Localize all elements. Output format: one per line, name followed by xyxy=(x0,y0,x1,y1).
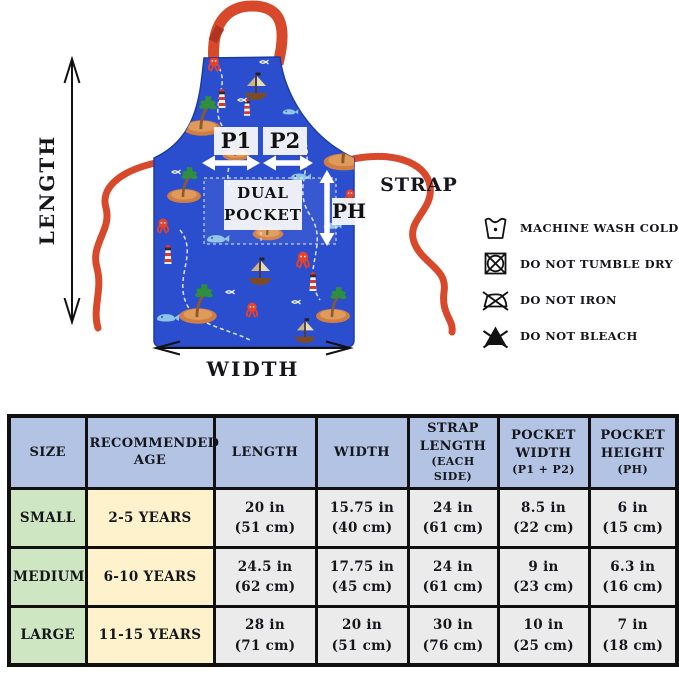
cell-strap-length: 30 in(76 cm) xyxy=(408,606,498,665)
do-not-iron-icon xyxy=(482,286,509,313)
col-header-pocket-height: POCKET HEIGHT(PH) xyxy=(589,416,677,488)
cell-width: 15.75 in(40 cm) xyxy=(316,488,408,547)
cell-length: 24.5 in(62 cm) xyxy=(214,547,316,606)
length-label: LENGTH xyxy=(35,131,59,249)
care-label: MACHINE WASH COLD xyxy=(520,221,679,235)
cell-size: MEDIUM xyxy=(9,547,86,606)
ph-label: PH xyxy=(332,198,366,225)
table-row-medium: MEDIUM 6-10 YEARS 24.5 in(62 cm) 17.75 i… xyxy=(9,547,677,606)
strap-label: STRAP xyxy=(376,174,462,196)
cell-pocket-width: 8.5 in(22 cm) xyxy=(498,488,589,547)
care-instructions: MACHINE WASH COLD DO NOT TUMBLE DRY DO N… xyxy=(482,214,678,358)
col-header-recommended-age: RECOMMENDED AGE xyxy=(86,416,214,488)
cell-pocket-height: 6 in(15 cm) xyxy=(589,488,677,547)
cell-width: 20 in(51 cm) xyxy=(316,606,408,665)
length-arrow xyxy=(65,59,80,322)
col-header-length: LENGTH xyxy=(214,416,316,488)
cell-width: 17.75 in(45 cm) xyxy=(316,547,408,606)
table-header-row: SIZE RECOMMENDED AGE LENGTH WIDTH STRAP … xyxy=(9,416,677,488)
do-not-bleach-icon xyxy=(482,322,509,349)
cell-pocket-height: 6.3 in(16 cm) xyxy=(589,547,677,606)
cell-pocket-width: 10 in(25 cm) xyxy=(498,606,589,665)
dual-pocket-label: DUAL POCKET xyxy=(224,180,302,230)
do-not-tumble-dry-icon xyxy=(482,250,509,277)
p2-label: P2 xyxy=(263,127,307,155)
cell-age: 2-5 YEARS xyxy=(86,488,214,547)
care-label: DO NOT BLEACH xyxy=(520,329,638,343)
col-header-pocket-width: POCKET WIDTH(P1 + P2) xyxy=(498,416,589,488)
cell-pocket-width: 9 in(23 cm) xyxy=(498,547,589,606)
care-label: DO NOT IRON xyxy=(520,293,617,307)
care-label: DO NOT TUMBLE DRY xyxy=(520,257,673,271)
care-row-machine-wash: MACHINE WASH COLD xyxy=(482,214,678,241)
care-row-no-bleach: DO NOT BLEACH xyxy=(482,322,678,349)
table-row-small: SMALL 2-5 YEARS 20 in(51 cm) 15.75 in(40… xyxy=(9,488,677,547)
col-header-size: SIZE xyxy=(9,416,86,488)
cell-pocket-height: 7 in(18 cm) xyxy=(589,606,677,665)
cell-size: LARGE xyxy=(9,606,86,665)
cell-age: 11-15 YEARS xyxy=(86,606,214,665)
apron-size-chart-image: LENGTH WIDTH STRAP P1 P2 DUAL POCKET PH … xyxy=(0,0,679,686)
size-table: SIZE RECOMMENDED AGE LENGTH WIDTH STRAP … xyxy=(7,414,679,667)
col-header-strap-length: STRAP LENGTH(EACH SIDE) xyxy=(408,416,498,488)
p1-label: P1 xyxy=(214,127,258,155)
cell-size: SMALL xyxy=(9,488,86,547)
machine-wash-cold-icon xyxy=(482,214,509,241)
cell-length: 28 in(71 cm) xyxy=(214,606,316,665)
width-label: WIDTH xyxy=(203,357,303,381)
cell-age: 6-10 YEARS xyxy=(86,547,214,606)
care-row-no-iron: DO NOT IRON xyxy=(482,286,678,313)
care-row-no-tumble-dry: DO NOT TUMBLE DRY xyxy=(482,250,678,277)
table-row-large: LARGE 11-15 YEARS 28 in(71 cm) 20 in(51 … xyxy=(9,606,677,665)
neck-strap xyxy=(209,6,282,64)
cell-length: 20 in(51 cm) xyxy=(214,488,316,547)
col-header-width: WIDTH xyxy=(316,416,408,488)
cell-strap-length: 24 in(61 cm) xyxy=(408,547,498,606)
cell-strap-length: 24 in(61 cm) xyxy=(408,488,498,547)
